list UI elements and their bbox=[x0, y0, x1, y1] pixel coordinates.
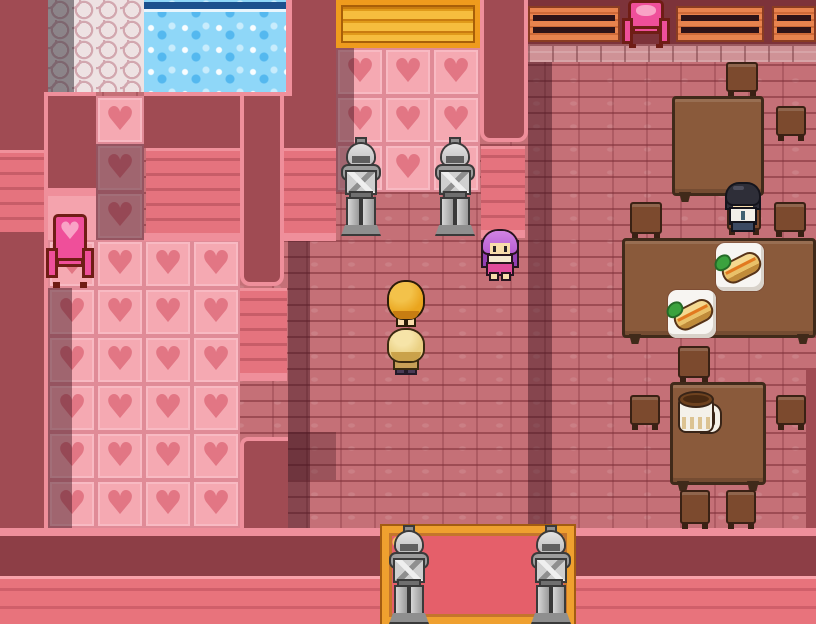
heart-floor-tile: ♥ bbox=[144, 336, 192, 384]
foot bbox=[491, 274, 497, 279]
pink-throne[interactable]: ♥ bbox=[46, 214, 94, 288]
foot bbox=[408, 319, 414, 325]
statue-part bbox=[538, 587, 549, 613]
statue-part bbox=[348, 199, 359, 225]
dividing-wall-face bbox=[283, 148, 336, 233]
statue-part bbox=[341, 225, 381, 236]
heart-floor-tile: ♥ bbox=[192, 432, 240, 480]
span: ♥ bbox=[441, 102, 471, 135]
shadow bbox=[96, 144, 144, 240]
span: ♥ bbox=[393, 102, 423, 135]
heart-floor-tile: ♥ bbox=[96, 480, 144, 528]
chair[interactable] bbox=[726, 62, 758, 92]
statue-part bbox=[347, 172, 375, 193]
bench-slot bbox=[777, 15, 811, 21]
chair[interactable] bbox=[630, 395, 660, 425]
hair-highlight bbox=[733, 186, 744, 190]
span: ♥ bbox=[105, 246, 135, 279]
statue-part bbox=[542, 544, 560, 551]
span: ♥ bbox=[393, 150, 423, 183]
heart-floor-tile: ♥ bbox=[144, 480, 192, 528]
character-light-blonde[interactable] bbox=[388, 329, 424, 373]
eye bbox=[504, 246, 507, 252]
wall-pillar-south bbox=[240, 437, 288, 528]
statue-part bbox=[442, 199, 453, 225]
span: ♥ bbox=[201, 486, 231, 519]
span: ♥ bbox=[105, 486, 135, 519]
pink-throne[interactable] bbox=[620, 0, 672, 48]
span: ♥ bbox=[153, 294, 183, 327]
pitcher-opening bbox=[678, 391, 714, 408]
statue-part bbox=[531, 613, 571, 624]
heart-floor-tile: ♥ bbox=[432, 48, 480, 96]
span: ♥ bbox=[105, 294, 135, 327]
hot-dog bbox=[717, 247, 762, 284]
heart-floor-tile: ♥ bbox=[96, 288, 144, 336]
statue-part bbox=[435, 225, 475, 236]
heart-floor-tile: ♥ bbox=[96, 432, 144, 480]
statue-part bbox=[352, 156, 370, 163]
armor-statue[interactable] bbox=[432, 139, 478, 235]
dining-table[interactable] bbox=[672, 96, 764, 196]
span: ♥ bbox=[153, 342, 183, 375]
heart-floor-tile: ♥ bbox=[192, 336, 240, 384]
throne-arm bbox=[659, 18, 670, 44]
shadow bbox=[48, 288, 72, 528]
bench-slot bbox=[533, 15, 615, 21]
span: ♥ bbox=[201, 438, 231, 471]
heart-room-north-wall bbox=[48, 96, 96, 188]
chair[interactable] bbox=[678, 346, 710, 378]
shadow bbox=[48, 0, 74, 92]
wall-trim bbox=[48, 188, 96, 196]
bench-slot bbox=[681, 27, 759, 33]
pants bbox=[733, 223, 753, 230]
hair-shade bbox=[393, 311, 419, 319]
heart-floor-tile: ♥ bbox=[384, 48, 432, 96]
bench-slot bbox=[681, 15, 759, 21]
character-seated-patron[interactable] bbox=[725, 184, 761, 232]
armor-statue[interactable] bbox=[386, 527, 432, 623]
hair-shade bbox=[391, 352, 421, 361]
wall-trim bbox=[283, 233, 336, 241]
pool bbox=[144, 0, 286, 92]
statue-part bbox=[363, 199, 374, 225]
span: ♥ bbox=[201, 390, 231, 423]
bench-slot bbox=[777, 27, 811, 33]
chair[interactable] bbox=[776, 106, 806, 136]
armor-statue[interactable] bbox=[338, 139, 384, 235]
tie bbox=[741, 211, 745, 220]
door-hall-east-wall bbox=[480, 0, 528, 142]
wall-trim bbox=[144, 233, 240, 241]
statue-part bbox=[457, 199, 468, 225]
game-viewport: ♥♥♥ ♥♥♥♥♥♥♥♥♥♥♥♥♥♥♥♥♥♥♥♥♥♥♥♥ ♥♥♥♥♥♥♥♥♥ ♥ bbox=[0, 0, 816, 624]
span: ♥ bbox=[441, 54, 471, 87]
span: ♥ bbox=[393, 54, 423, 87]
gold-door[interactable] bbox=[336, 0, 480, 48]
span: ♥ bbox=[153, 390, 183, 423]
wall-bench[interactable] bbox=[528, 6, 620, 42]
shadow bbox=[288, 241, 310, 528]
dividing-wall-face bbox=[146, 148, 240, 233]
heart-floor-tile: ♥ bbox=[96, 384, 144, 432]
span: ♥ bbox=[105, 390, 135, 423]
heart-floor-tile: ♥ bbox=[384, 96, 432, 144]
heart-floor-tile: ♥ bbox=[144, 240, 192, 288]
span: ♥ bbox=[153, 246, 183, 279]
span: ♥ bbox=[105, 438, 135, 471]
foot bbox=[503, 274, 509, 279]
heart-floor-tile: ♥ bbox=[96, 336, 144, 384]
span: ♥ bbox=[153, 486, 183, 519]
skirt bbox=[488, 264, 512, 274]
throne-leg bbox=[53, 282, 60, 288]
heart-floor-tile: ♥ bbox=[192, 288, 240, 336]
span: ♥ bbox=[201, 294, 231, 327]
chair[interactable] bbox=[774, 202, 806, 232]
heart-floor-tile: ♥ bbox=[432, 96, 480, 144]
span: ♥ bbox=[153, 438, 183, 471]
span: ♥ bbox=[201, 342, 231, 375]
wall-pillar bbox=[240, 96, 284, 286]
heart-floor-tile: ♥ bbox=[96, 240, 144, 288]
food-plate[interactable] bbox=[716, 243, 764, 291]
character-purple-hair-girl[interactable] bbox=[482, 230, 518, 280]
statue-part bbox=[400, 544, 418, 551]
throne-seat bbox=[632, 26, 660, 34]
wall-bench[interactable] bbox=[772, 6, 816, 42]
statue-part bbox=[411, 587, 422, 613]
character-golden-hair[interactable] bbox=[388, 281, 424, 325]
left-wall bbox=[0, 0, 48, 528]
heart-floor-tile: ♥ bbox=[144, 288, 192, 336]
statue-part bbox=[389, 613, 429, 624]
statue-part bbox=[396, 587, 407, 613]
heart-floor-tile: ♥ bbox=[192, 384, 240, 432]
statue-part bbox=[553, 587, 564, 613]
heart-room-east-wall-face bbox=[240, 288, 287, 373]
statue-part bbox=[441, 172, 469, 193]
chair[interactable] bbox=[680, 490, 710, 524]
food-plate[interactable] bbox=[668, 290, 716, 338]
foot bbox=[398, 319, 404, 325]
heart-floor-tile: ♥ bbox=[144, 432, 192, 480]
shadow bbox=[288, 432, 336, 480]
pool-edge bbox=[144, 2, 286, 12]
heart-floor-tile: ♥ bbox=[192, 480, 240, 528]
heart-floor-tile: ♥ bbox=[192, 240, 240, 288]
armor-statue[interactable] bbox=[528, 527, 574, 623]
span: ♥ bbox=[105, 102, 135, 135]
heart-floor-tile: ♥ bbox=[96, 96, 144, 144]
door-hall-east-wall-face bbox=[481, 146, 525, 230]
shadow bbox=[528, 46, 552, 528]
hot-dog bbox=[669, 294, 714, 331]
heart-floor-tile: ♥ bbox=[384, 144, 432, 192]
throne-leg bbox=[656, 44, 663, 48]
chair[interactable] bbox=[776, 395, 806, 425]
heart-floor-tile: ♥ bbox=[144, 384, 192, 432]
wall-trim bbox=[240, 373, 287, 381]
torso bbox=[395, 360, 417, 368]
statue-part bbox=[446, 156, 464, 163]
left-wall-face bbox=[0, 150, 44, 232]
chair[interactable] bbox=[630, 202, 662, 234]
throne-cushion bbox=[636, 5, 656, 16]
stone-ledge bbox=[528, 44, 816, 62]
east-wall-edge bbox=[806, 368, 816, 528]
heart-icon: ♥ bbox=[56, 219, 84, 243]
eye bbox=[493, 246, 496, 252]
bench-slot bbox=[533, 27, 615, 33]
wall-bench[interactable] bbox=[676, 6, 764, 42]
throne-leg bbox=[80, 282, 87, 288]
span: ♥ bbox=[105, 342, 135, 375]
span: ♥ bbox=[201, 246, 231, 279]
pitcher[interactable] bbox=[674, 390, 720, 436]
throne-seat bbox=[56, 258, 84, 267]
chair[interactable] bbox=[726, 490, 756, 524]
throne-leg bbox=[629, 44, 636, 48]
statue-part bbox=[395, 560, 423, 581]
statue-part bbox=[537, 560, 565, 581]
